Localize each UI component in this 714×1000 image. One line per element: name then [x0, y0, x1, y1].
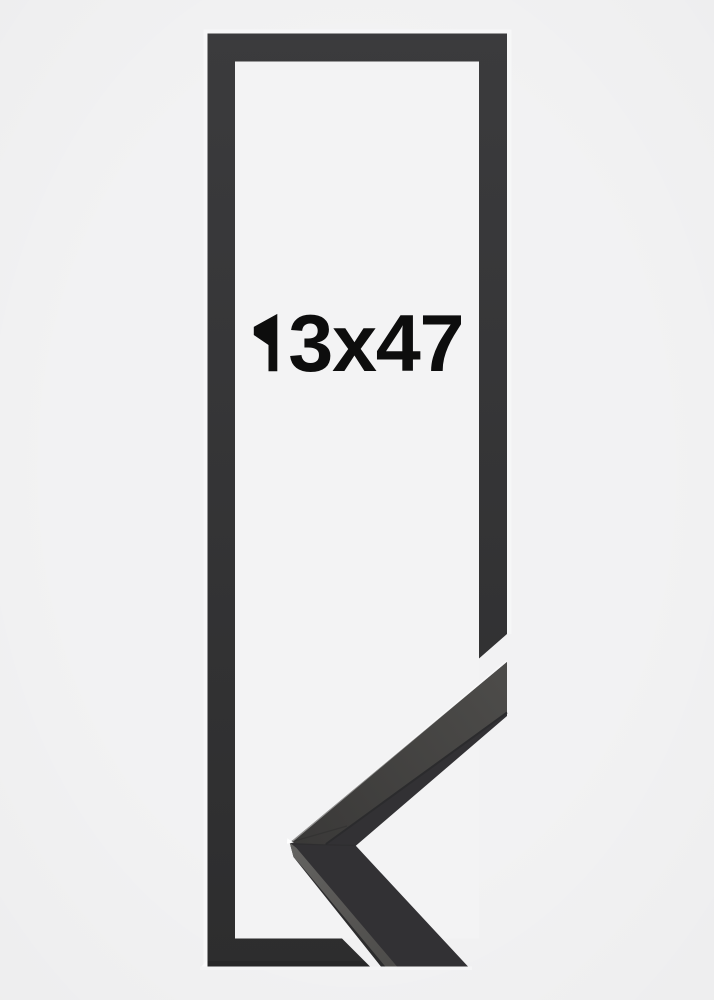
svg-text:3x47: 3x47	[288, 299, 463, 389]
